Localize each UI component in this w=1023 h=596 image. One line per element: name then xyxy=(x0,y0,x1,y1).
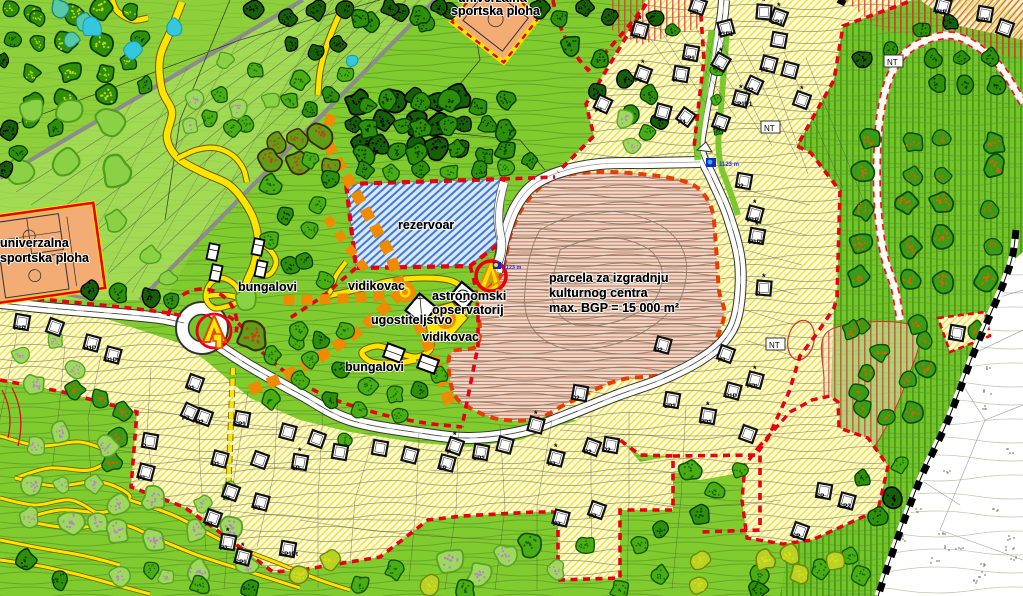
svg-text:P2: P2 xyxy=(548,461,556,468)
svg-text:P3: P3 xyxy=(253,505,261,512)
svg-text:*: * xyxy=(554,442,558,452)
svg-text:*: * xyxy=(641,58,645,68)
svg-text:max. BGP = 15 000 m²: max. BGP = 15 000 m² xyxy=(549,301,679,315)
svg-text:P: P xyxy=(756,291,760,298)
svg-text:*: * xyxy=(638,14,642,24)
svg-text:vidikovac: vidikovac xyxy=(422,330,479,344)
svg-text:*: * xyxy=(706,400,710,410)
svg-text:*: * xyxy=(719,46,723,56)
svg-text:P1Pt: P1Pt xyxy=(749,239,763,246)
svg-text:P2: P2 xyxy=(655,347,663,354)
svg-text:P: P xyxy=(447,449,451,456)
svg-text:P2: P2 xyxy=(713,125,721,132)
svg-text:P2: P2 xyxy=(553,521,561,528)
svg-text:P2: P2 xyxy=(589,513,597,520)
svg-text:univerzalna: univerzalna xyxy=(0,236,70,250)
svg-text:*: * xyxy=(777,1,781,11)
svg-text:SP1: SP1 xyxy=(977,17,989,24)
svg-text:*: * xyxy=(226,526,230,536)
svg-text:P3: P3 xyxy=(718,357,726,364)
svg-text:rezervoar: rezervoar xyxy=(398,218,454,232)
svg-text:SP1: SP1 xyxy=(664,403,676,410)
svg-text:P1: P1 xyxy=(713,65,721,72)
svg-text:P2: P2 xyxy=(205,521,213,528)
svg-text:*: * xyxy=(453,430,457,440)
svg-text:NT: NT xyxy=(887,58,898,67)
svg-text:kulturnog centra: kulturnog centra xyxy=(549,286,649,300)
svg-text:SP: SP xyxy=(690,9,698,16)
svg-text:*: * xyxy=(800,84,804,94)
svg-text:SP: SP xyxy=(792,533,800,540)
svg-text:bungalovi: bungalovi xyxy=(345,360,404,374)
svg-text:P: P xyxy=(673,77,677,84)
svg-text:P1: P1 xyxy=(635,77,643,84)
svg-text:1123 m: 1123 m xyxy=(503,265,521,271)
svg-text:NT: NT xyxy=(764,124,775,133)
svg-text:1P: 1P xyxy=(439,465,447,472)
svg-text:*: * xyxy=(739,83,743,93)
svg-text:P2: P2 xyxy=(736,183,744,190)
svg-text:sportska ploha: sportska ploha xyxy=(0,251,90,265)
svg-text:SP1Pt: SP1Pt xyxy=(280,551,298,558)
svg-text:sportska ploha: sportska ploha xyxy=(451,4,541,18)
svg-text:SP1: SP1 xyxy=(235,559,247,566)
svg-text:*: * xyxy=(753,198,757,208)
svg-text:*: * xyxy=(753,364,757,374)
svg-text:SP1: SP1 xyxy=(683,55,695,62)
svg-text:H1P: H1P xyxy=(84,345,96,352)
svg-text:ugostiteljstvo: ugostiteljstvo xyxy=(371,313,453,327)
svg-text:P2: P2 xyxy=(584,449,592,456)
svg-text:*: * xyxy=(298,446,302,456)
svg-text:P2: P2 xyxy=(182,415,190,422)
svg-text:P1: P1 xyxy=(223,495,231,502)
svg-text:P: P xyxy=(949,335,953,342)
svg-text:*: * xyxy=(762,0,766,6)
svg-text:*: * xyxy=(241,541,245,551)
svg-text:SP: SP xyxy=(632,33,640,40)
svg-text:bungalovi: bungalovi xyxy=(238,280,297,294)
svg-text:SP1: SP1 xyxy=(473,455,485,462)
svg-text:P1: P1 xyxy=(595,107,603,114)
svg-text:SP2: SP2 xyxy=(839,503,851,510)
svg-text:P4: P4 xyxy=(678,119,686,126)
svg-text:P1Pt: P1Pt xyxy=(105,357,119,364)
svg-text:parcela za izgradnju: parcela za izgradnju xyxy=(549,271,668,285)
svg-text:SP1: SP1 xyxy=(234,421,246,428)
svg-text:P: P xyxy=(142,443,146,450)
svg-text:*: * xyxy=(534,409,538,419)
svg-text:P1P: P1P xyxy=(14,325,26,332)
svg-text:P1: P1 xyxy=(212,461,220,468)
svg-text:1123 m: 1123 m xyxy=(719,162,739,168)
svg-text:P1: P1 xyxy=(138,475,146,482)
svg-text:P1P: P1P xyxy=(725,393,737,400)
svg-text:P1: P1 xyxy=(187,385,195,392)
svg-text:PPt: PPt xyxy=(747,383,757,390)
svg-text:P2: P2 xyxy=(603,447,611,454)
svg-text:NT: NT xyxy=(769,341,780,350)
svg-text:SP1P1: SP1P1 xyxy=(733,101,753,108)
svg-text:*: * xyxy=(755,220,759,230)
svg-text:SP: SP xyxy=(816,493,824,500)
svg-text:P2: P2 xyxy=(572,395,580,402)
svg-text:PP1: PP1 xyxy=(700,419,712,426)
svg-text:P1P: P1P xyxy=(935,9,947,16)
svg-text:*: * xyxy=(762,272,766,282)
svg-text:P2: P2 xyxy=(196,419,204,426)
svg-text:P2: P2 xyxy=(220,545,228,552)
svg-text:P1P1: P1P1 xyxy=(718,31,734,38)
svg-text:SP1: SP1 xyxy=(771,19,783,26)
svg-text:1P: 1P xyxy=(292,465,300,472)
svg-text:astronomski: astronomski xyxy=(432,289,506,303)
svg-text:vidikovac: vidikovac xyxy=(348,279,405,293)
svg-text:P1: P1 xyxy=(761,67,769,74)
